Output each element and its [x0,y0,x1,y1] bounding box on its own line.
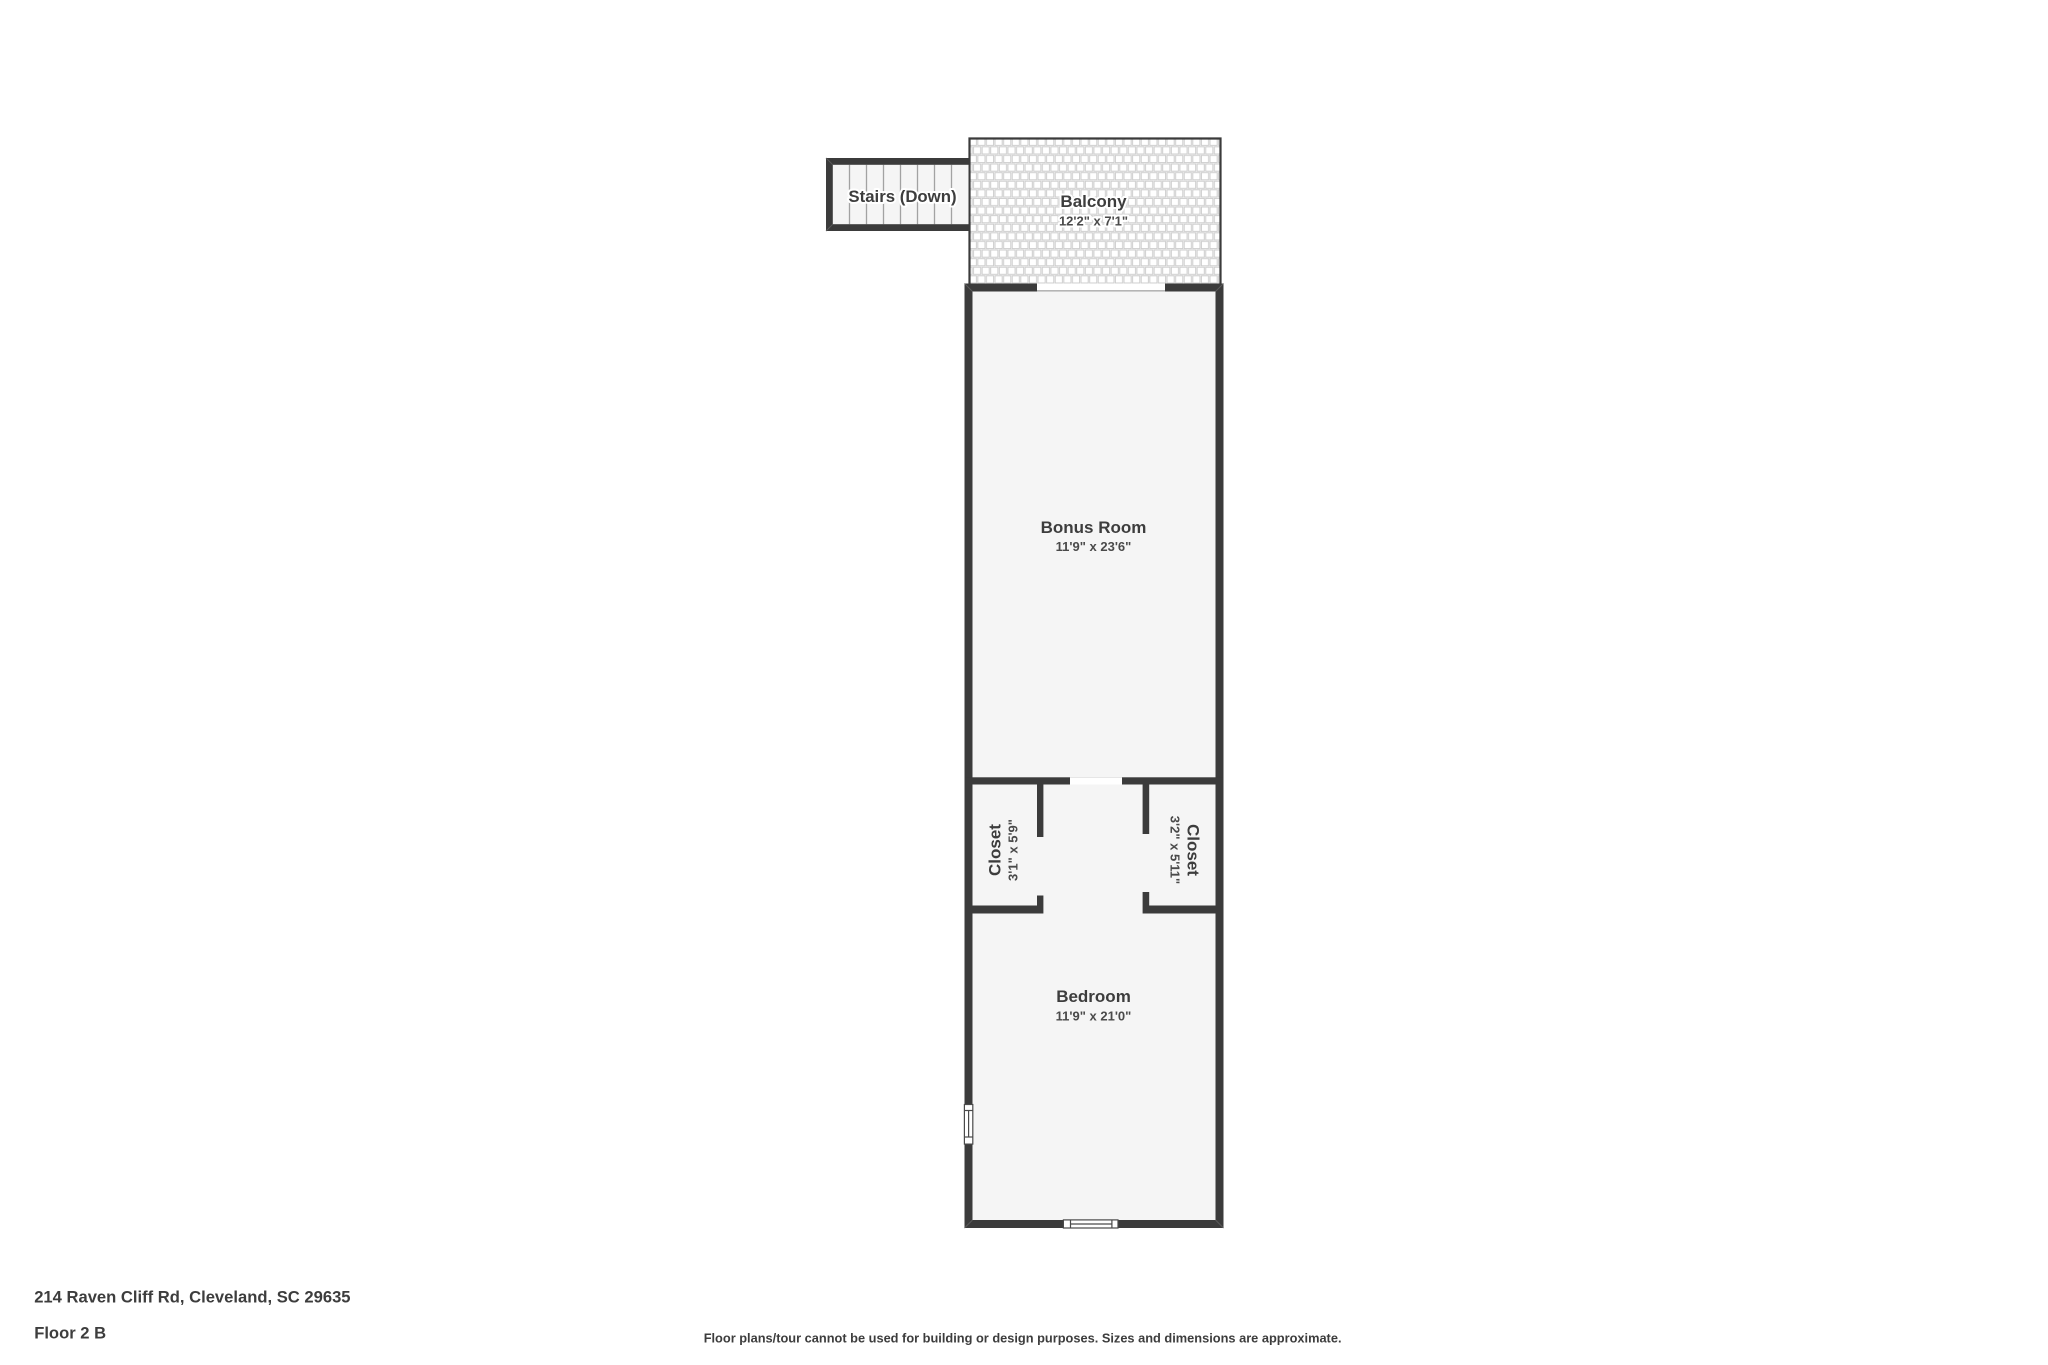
svg-text:Floor 2 B: Floor 2 B [34,1324,106,1343]
svg-text:12'2" x 7'1": 12'2" x 7'1" [1059,214,1128,229]
svg-text:3'2" x 5'11": 3'2" x 5'11" [1168,816,1183,884]
svg-text:214 Raven Cliff Rd, Cleveland,: 214 Raven Cliff Rd, Cleveland, SC 29635 [34,1288,350,1307]
svg-text:Stairs (Down): Stairs (Down) [848,187,956,206]
svg-text:Closet: Closet [985,824,1004,876]
svg-text:3'1" x 5'9": 3'1" x 5'9" [1005,819,1020,881]
svg-text:Closet: Closet [1184,824,1203,876]
svg-text:Floor plans/tour cannot be use: Floor plans/tour cannot be used for buil… [704,1331,1342,1346]
svg-text:Bonus Room: Bonus Room [1041,518,1147,537]
svg-text:11'9" x 21'0": 11'9" x 21'0" [1056,1009,1132,1024]
svg-text:Bedroom: Bedroom [1056,987,1131,1006]
svg-text:Balcony: Balcony [1060,192,1127,211]
svg-text:11'9" x 23'6": 11'9" x 23'6" [1056,539,1132,554]
